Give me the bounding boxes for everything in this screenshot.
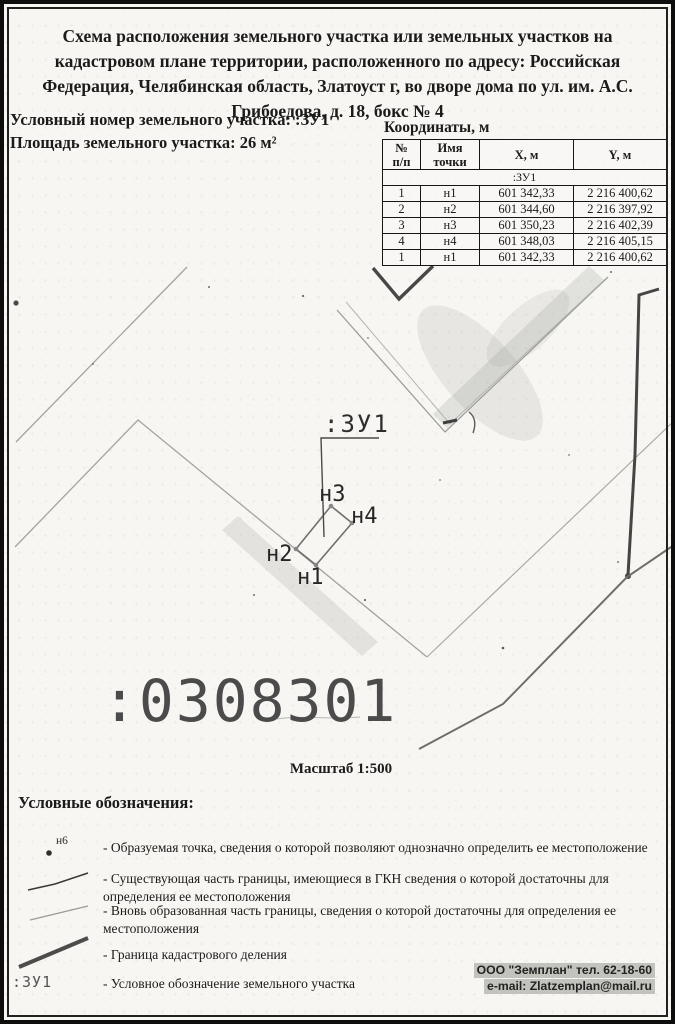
ink-speck [364, 599, 366, 601]
cadastral-division-endpoint [625, 573, 631, 579]
parcel-point-n2 [294, 547, 299, 552]
ink-speck [617, 561, 619, 563]
cadastral-division-line [628, 289, 659, 575]
ink-speck [367, 337, 369, 339]
ink-speck [502, 647, 505, 650]
ink-mark [443, 420, 457, 423]
table-row: 2 н2 601 344,60 2 216 397,92 [383, 202, 667, 218]
existing-boundary-line [346, 283, 601, 424]
table-row: 1 н1 601 342,33 2 216 400,62 [383, 250, 667, 266]
legend-new-boundary-symbol [30, 906, 88, 920]
table-group-row: :ЗУ1 [383, 170, 667, 186]
col-header-x: X, м [480, 140, 574, 170]
map-point-label-n3: н3 [319, 482, 346, 507]
ink-speck [439, 479, 441, 481]
table-row: 3 н3 601 350,23 2 216 402,39 [383, 218, 667, 234]
existing-boundary-line [427, 420, 675, 657]
coords-table: № п/п Имя точки X, м Y, м :ЗУ1 1 н1 601 … [382, 139, 667, 266]
ink-mark [469, 412, 475, 433]
cadastral-division-line [373, 266, 433, 299]
legend-point-symbol [46, 850, 52, 856]
table-row: 4 н4 601 348,03 2 216 405,15 [383, 234, 667, 250]
legend-parcel-symbol-label: :ЗУ1 [12, 973, 52, 991]
scanned-cadastral-scheme-page: Схема расположения земельного участка ил… [0, 0, 675, 1024]
legend-title: Условные обозначения: [18, 793, 194, 813]
area-line: Площадь земельного участка: 26 м² [10, 133, 277, 153]
existing-boundary-line [337, 277, 608, 432]
ink-speck [208, 286, 210, 288]
cadastral-quarter-number: :0308301 [102, 672, 397, 730]
col-header-y: Y, м [574, 140, 667, 170]
ink-speck [92, 363, 94, 365]
ink-speck [302, 295, 304, 297]
coords-header-row: № п/п Имя точки X, м Y, м [383, 140, 667, 170]
map-point-label-n2: н2 [266, 542, 293, 567]
company-email-line: e-mail: Zlatzemplan@mail.ru [484, 979, 655, 994]
ink-speck [568, 454, 570, 456]
existing-boundary-line [15, 420, 427, 657]
parcel-outline [296, 506, 352, 565]
existing-boundary-line [16, 267, 187, 442]
ink-speck [610, 271, 612, 273]
map-point-label-n1: н1 [297, 565, 324, 590]
legend-item-cadastral-division: - Граница кадастрового деления [103, 946, 663, 964]
legend-item-formed-point: - Образуемая точка, сведения о которой п… [103, 839, 663, 857]
shading-blotch [475, 277, 582, 379]
company-phone-line: ООО "Земплан" тел. 62-18-60 [474, 963, 655, 978]
legend-cadastral-division-symbol [19, 938, 88, 967]
document-title: Схема расположения земельного участка ил… [30, 24, 645, 123]
col-header-name: Имя точки [421, 140, 480, 170]
conditional-number-line: Условный номер земельного участка: :ЗУ1 [10, 110, 329, 130]
cadastral-division-line [419, 545, 674, 749]
company-stamp: ООО "Земплан" тел. 62-18-60 e-mail: Zlat… [474, 963, 655, 995]
legend-existing-boundary-symbol [28, 873, 88, 890]
legend-item-new-boundary: - Вновь образованная часть границы, свед… [103, 902, 663, 938]
map-parcel-label: :ЗУ1 [324, 410, 390, 438]
col-header-num: № п/п [383, 140, 421, 170]
legend-item-existing-boundary: - Существующая часть границы, имеющиеся … [103, 870, 663, 906]
legend-point-symbol-label: н6 [56, 835, 68, 847]
ink-speck [253, 594, 255, 596]
shading-blotch [396, 286, 563, 461]
ink-speck [13, 300, 18, 305]
map-scale-label: Масштаб 1:500 [241, 761, 441, 778]
coords-table-title: Координаты, м [384, 119, 489, 137]
shading-band [433, 266, 604, 428]
table-row: 1 н1 601 342,33 2 216 400,62 [383, 186, 667, 202]
map-point-label-n4: н4 [351, 504, 378, 529]
